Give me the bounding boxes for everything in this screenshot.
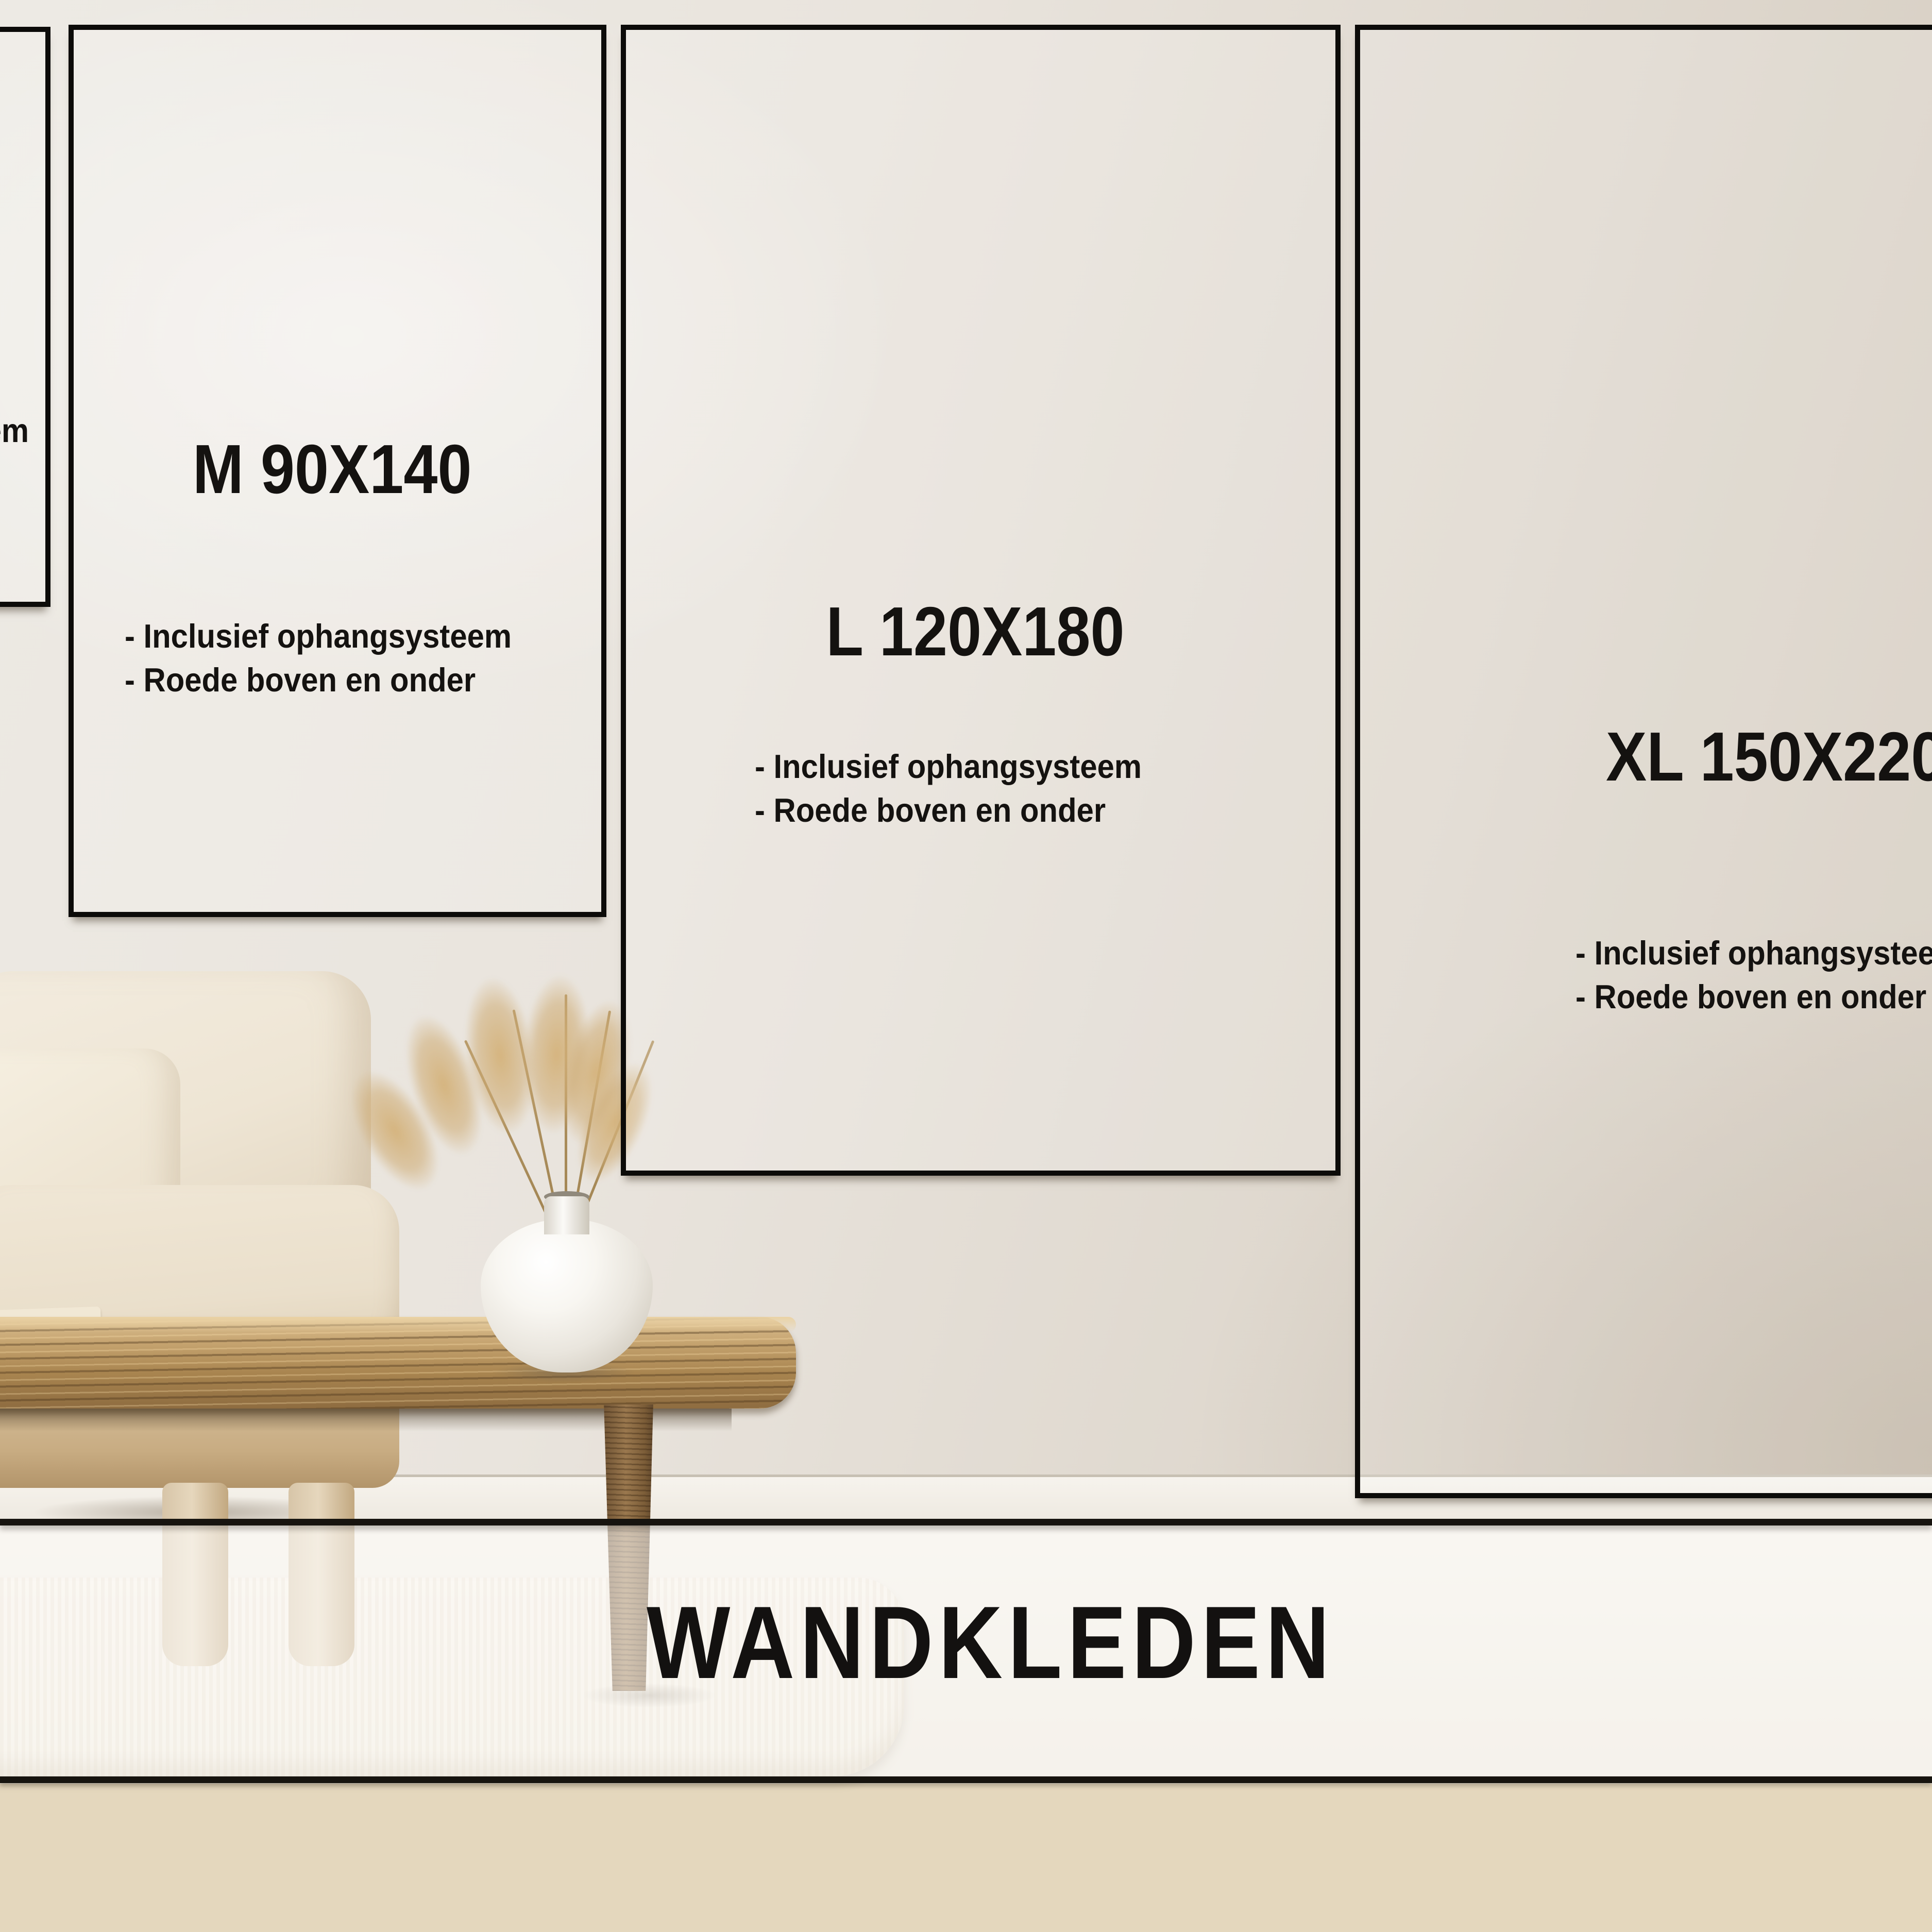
feature-line: - Roede boven en onder bbox=[125, 658, 476, 702]
size-card-s bbox=[0, 27, 50, 607]
feature-line: - Inclusief ophangsysteem bbox=[0, 409, 29, 452]
product-size-diagram: - Inclusief ophangsysteem - Roede boven … bbox=[0, 0, 1932, 1932]
feature-line: - Inclusief ophangsysteem bbox=[755, 744, 1142, 788]
size-card-l-features: - Inclusief ophangsysteem - Roede boven … bbox=[755, 744, 1175, 832]
vase-neck bbox=[544, 1196, 589, 1234]
size-card-l-title: L 120X180 bbox=[626, 597, 1325, 666]
banner-title: WANDKLEDEN bbox=[647, 1590, 1447, 1696]
divider-line-bottom bbox=[0, 1776, 1932, 1783]
coffee-table-top-highlight bbox=[0, 1317, 796, 1332]
size-card-m-features: - Inclusief ophangsysteem - Roede boven … bbox=[125, 614, 545, 702]
feature-line: - Roede boven en onder bbox=[755, 788, 1106, 832]
divider-line-top bbox=[0, 1519, 1932, 1526]
size-card-xl-features: - Inclusief ophangsysteem - Roede boven … bbox=[1575, 931, 1932, 1019]
size-card-xl-title: XL 150X220 bbox=[1606, 722, 1932, 791]
feature-line: - Inclusief ophangsysteem bbox=[125, 614, 512, 658]
size-card-s-features: - Inclusief ophangsysteem - Roede boven … bbox=[0, 409, 62, 496]
size-card-m-title: M 90X140 bbox=[74, 434, 591, 504]
feature-line: - Roede boven en onder bbox=[1575, 975, 1926, 1019]
feature-line: - Inclusief ophangsysteem bbox=[1575, 931, 1932, 975]
wood-floor-edge bbox=[0, 1783, 1932, 1932]
